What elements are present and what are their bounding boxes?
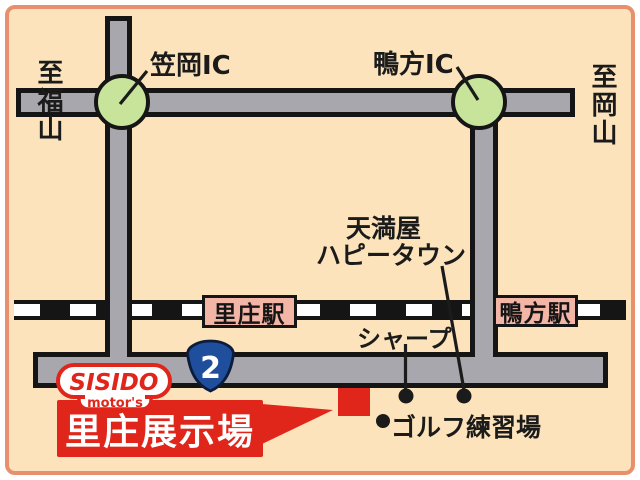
golf-bullet-dot	[376, 414, 390, 428]
access-map: 里庄駅 鴨方駅 2 笠岡IC 鴨方IC 至福山 至岡山 天満屋 ハピータウン シ…	[0, 0, 640, 480]
kasaoka-ic-label: 笠岡IC	[150, 45, 231, 82]
direction-fukuyama-label: 至福山	[30, 59, 67, 143]
kasaoka-ic-pointer-line	[120, 71, 147, 104]
tenmaya-label-line2: ハピータウン	[316, 236, 466, 272]
route2-shield: 2	[188, 341, 234, 391]
showroom-location-marker	[338, 388, 370, 416]
route2-number: 2	[200, 351, 221, 386]
sharp-location-dot	[399, 389, 414, 404]
tenmaya-location-dot	[457, 389, 472, 404]
sisido-brand-text: SISIDO	[70, 370, 159, 396]
kamogata-ic-pointer-line	[457, 67, 478, 100]
callout-tail	[262, 404, 333, 444]
sisido-logo: SISIDO motor's	[55, 362, 175, 412]
direction-okayama-label: 至岡山	[584, 63, 621, 147]
golf-range-label: ゴルフ練習場	[391, 408, 541, 444]
sharp-label: シャープ	[357, 319, 452, 354]
kamogata-ic-label: 鴨方IC	[373, 44, 454, 81]
sisido-brand-sub-text: motor's	[87, 396, 143, 411]
